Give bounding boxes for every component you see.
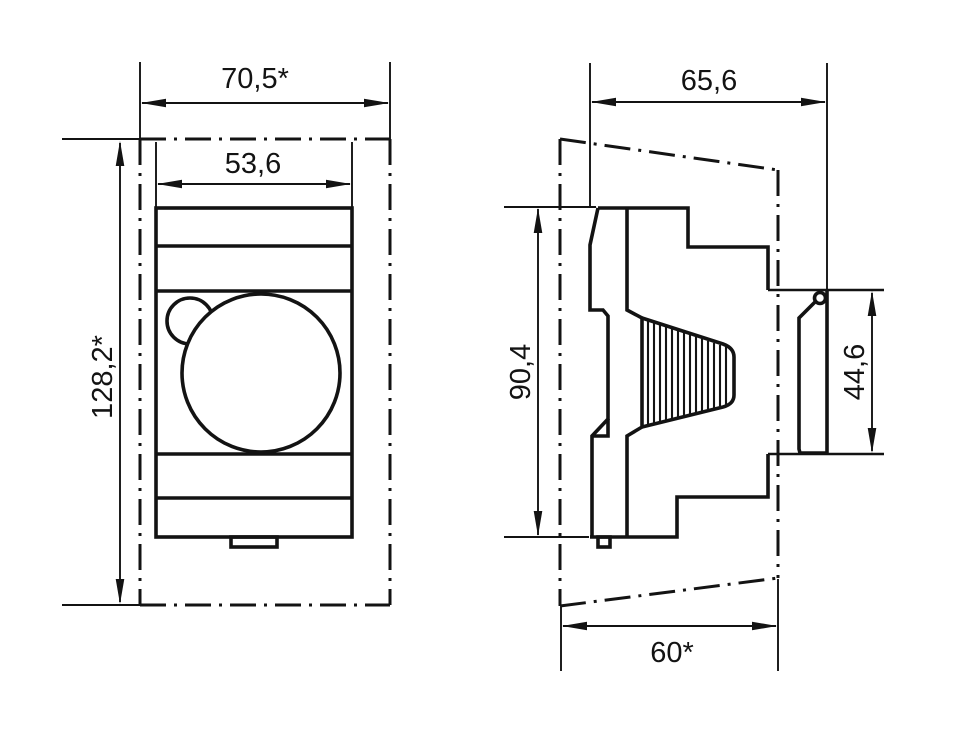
dim-label-front-device-width: 53,6 [225, 148, 281, 180]
technical-drawing: 70,5* 53,6 128,2* [0, 0, 970, 735]
dim-label-side-clip-height: 44,6 [839, 344, 871, 400]
dim-label-side-mounting-depth: 60* [650, 637, 694, 669]
dimension-front-overall-width: 70,5* [140, 62, 390, 139]
side-device-body [590, 208, 827, 547]
dim-label-side-overall-depth: 65,6 [681, 65, 737, 97]
dimension-front-device-width: 53,6 [156, 142, 352, 208]
clip-pivot-circle [815, 293, 826, 304]
dial-circle [182, 294, 340, 452]
dim-label-front-overall-width: 70,5* [221, 63, 289, 95]
din-rail-clip [799, 290, 827, 453]
dimension-side-device-height: 90,4 [504, 207, 596, 537]
front-bottom-tab [231, 537, 277, 547]
dim-label-front-overall-height: 128,2* [87, 335, 119, 419]
dimension-front-overall-height: 128,2* [62, 139, 140, 605]
side-bottom-tab [598, 537, 610, 547]
side-view-drawing: 65,6 90,4 44,6 60* [504, 63, 884, 671]
front-view-drawing: 70,5* 53,6 128,2* [62, 62, 390, 605]
dim-label-side-device-height: 90,4 [505, 344, 537, 400]
drawing-canvas: 70,5* 53,6 128,2* [0, 0, 970, 735]
front-device-body [156, 208, 352, 547]
